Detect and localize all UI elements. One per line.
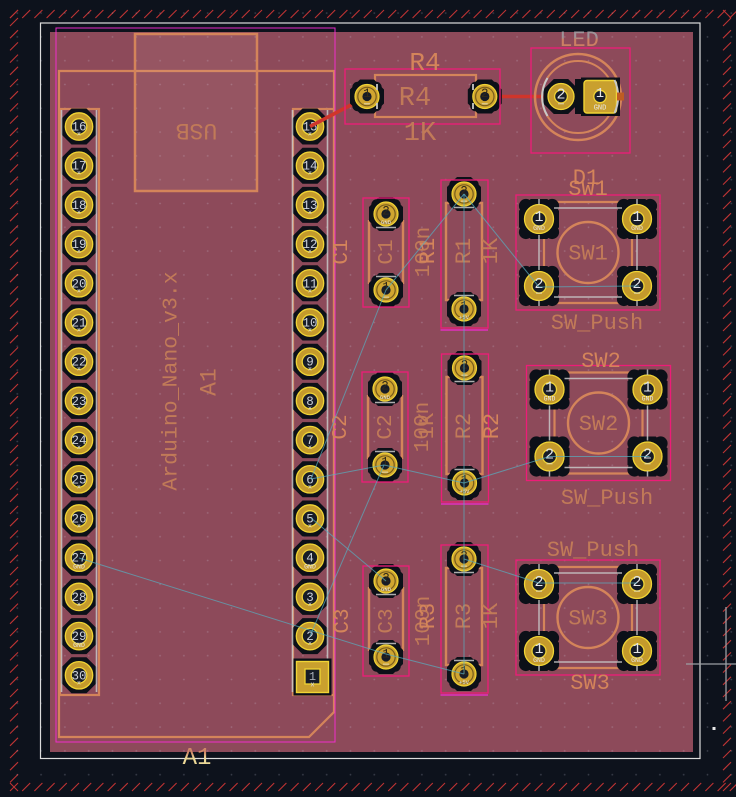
svg-text:2: 2: [643, 447, 652, 464]
svg-text:1: 1: [632, 209, 641, 226]
svg-text:x: x: [77, 679, 81, 686]
svg-text:2: 2: [381, 380, 389, 394]
svg-text:GND: GND: [304, 564, 316, 571]
svg-text:GND: GND: [533, 225, 545, 232]
svg-text:x: x: [308, 209, 312, 216]
svg-text:2: 2: [481, 87, 489, 101]
svg-text:SW1: SW1: [568, 177, 608, 202]
svg-text:+5V: +5V: [460, 488, 471, 495]
svg-text:x: x: [308, 248, 312, 255]
svg-text:GND: GND: [381, 586, 392, 593]
svg-text:R3: R3: [416, 603, 441, 629]
svg-text:x: x: [308, 444, 312, 451]
svg-text:1: 1: [381, 456, 389, 470]
svg-text:x: x: [308, 366, 312, 373]
svg-text:x: x: [308, 170, 312, 177]
svg-text:1K: 1K: [415, 412, 440, 439]
svg-text:R1: R1: [416, 238, 441, 264]
svg-text:1K: 1K: [479, 602, 504, 629]
svg-text:1: 1: [632, 641, 641, 658]
svg-text:GND: GND: [642, 396, 654, 403]
svg-text:SW2: SW2: [581, 349, 621, 374]
svg-text:x: x: [77, 483, 81, 490]
svg-text:x: x: [77, 405, 81, 412]
svg-text:1: 1: [363, 87, 371, 101]
svg-text:A1: A1: [197, 368, 223, 396]
svg-text:x: x: [77, 248, 81, 255]
svg-text:SW3: SW3: [570, 671, 610, 696]
svg-text:1: 1: [545, 380, 554, 397]
svg-text:USB: USB: [176, 117, 217, 143]
svg-text:2: 2: [545, 447, 554, 464]
svg-text:GND: GND: [73, 642, 85, 649]
svg-text:Arduino_Nano_v3.x: Arduino_Nano_v3.x: [160, 271, 184, 490]
svg-text:R2: R2: [480, 413, 505, 439]
svg-text:C1: C1: [331, 239, 354, 264]
svg-text:x: x: [77, 131, 81, 138]
svg-text:GND: GND: [381, 219, 392, 226]
svg-text:GND: GND: [631, 225, 643, 232]
svg-text:GND: GND: [544, 396, 556, 403]
svg-text:GND: GND: [380, 394, 391, 401]
svg-text:SW3: SW3: [568, 607, 608, 632]
svg-text:x: x: [77, 170, 81, 177]
svg-text:SW_Push: SW_Push: [547, 538, 639, 563]
svg-text:1: 1: [596, 86, 604, 102]
svg-text:A1: A1: [183, 745, 212, 772]
svg-text:2: 2: [534, 276, 543, 293]
svg-text:C2: C2: [330, 414, 353, 439]
svg-text:GND: GND: [631, 657, 643, 664]
svg-text:SW2: SW2: [579, 412, 619, 437]
svg-text:SW1: SW1: [568, 242, 608, 267]
svg-text:R4: R4: [409, 48, 440, 78]
svg-text:C3: C3: [332, 608, 355, 633]
svg-text:2: 2: [382, 205, 390, 219]
svg-text:x: x: [77, 209, 81, 216]
svg-text:1K: 1K: [479, 237, 504, 264]
svg-text:x: x: [308, 327, 312, 334]
svg-text:x: x: [308, 405, 312, 412]
svg-text:GND: GND: [533, 657, 545, 664]
svg-text:C2: C2: [375, 414, 398, 439]
svg-text:x: x: [308, 483, 312, 490]
svg-text:+5V: +5V: [459, 679, 470, 686]
svg-text:GND: GND: [594, 105, 607, 113]
svg-text:x: x: [77, 327, 81, 334]
svg-text:x: x: [308, 287, 312, 294]
svg-text:SW_Push: SW_Push: [551, 311, 643, 336]
svg-text:2: 2: [556, 87, 565, 104]
svg-text:x: x: [308, 640, 312, 647]
svg-text:SW_Push: SW_Push: [561, 486, 653, 511]
svg-text:1: 1: [534, 209, 543, 226]
svg-text:C3: C3: [376, 608, 399, 633]
svg-text:x: x: [77, 366, 81, 373]
svg-text:x: x: [77, 601, 81, 608]
svg-text:x: x: [308, 131, 312, 138]
svg-text:x: x: [308, 523, 312, 530]
svg-text:x: x: [77, 444, 81, 451]
svg-text:GND: GND: [73, 564, 85, 571]
svg-text:1: 1: [534, 641, 543, 658]
svg-text:x: x: [77, 287, 81, 294]
svg-text:1K: 1K: [404, 119, 437, 149]
svg-text:R4: R4: [399, 84, 431, 114]
svg-text:1: 1: [643, 380, 652, 397]
svg-text:C1: C1: [376, 239, 399, 264]
svg-text:LED: LED: [559, 28, 599, 53]
svg-text:2: 2: [632, 276, 641, 293]
svg-text:x: x: [310, 682, 314, 690]
svg-text:x: x: [77, 523, 81, 530]
svg-text:x: x: [308, 601, 312, 608]
